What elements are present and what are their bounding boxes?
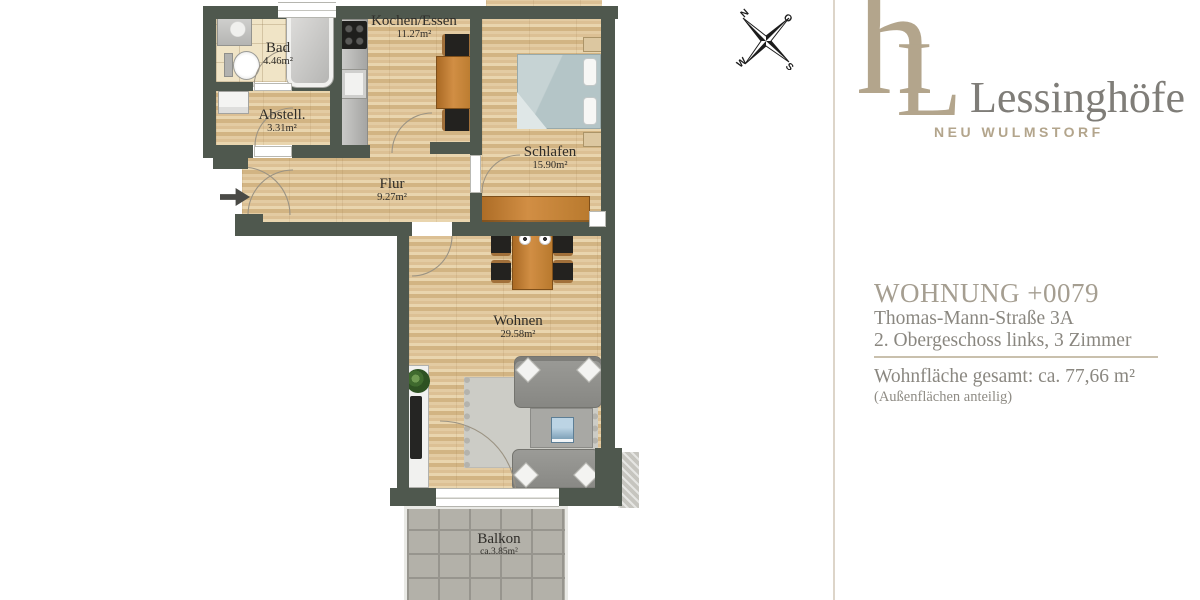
bath-window (278, 2, 336, 18)
tv (410, 396, 422, 459)
room-area: 4.46m² (263, 56, 293, 67)
unit-address: Thomas-Mann-Straße 3A (874, 308, 1074, 329)
wardrobe (477, 196, 590, 223)
room-label-abstell: Abstell. 3.31m² (258, 107, 305, 134)
pillow-bottom (583, 97, 597, 125)
room-label-kochen: Kochen/Essen 11.27m² (371, 13, 457, 40)
room-name: Schlafen (524, 144, 576, 160)
brand-monogram-l: L (896, 26, 962, 134)
kitchen-sink (341, 69, 367, 99)
dining-chair-1 (491, 233, 511, 256)
compass-label-west: W (735, 55, 750, 70)
room-area: 15.90m² (524, 160, 576, 171)
kitchen-table (436, 56, 474, 109)
wall-wohnen-bottom-left (390, 488, 440, 506)
shaft-window (589, 211, 606, 227)
compass-label-north: N (739, 8, 752, 20)
cooktop (341, 21, 367, 49)
wall-wohnen-bottom-right (556, 488, 601, 506)
schlafen-door-leaf (470, 155, 481, 193)
toilet-tank (224, 53, 233, 77)
wall-right (601, 6, 615, 455)
wall-entry-jamb-top (213, 155, 248, 169)
unit-area-note: (Außenflächen anteilig) (874, 390, 1012, 406)
pillow-top (583, 58, 597, 86)
room-name: Bad (263, 40, 293, 56)
bad-door-leaf (254, 83, 292, 91)
room-area: 11.27m² (371, 29, 457, 40)
room-area: 29.58m² (493, 329, 543, 340)
dining-chair-2 (491, 260, 511, 283)
storage-shelf (218, 91, 249, 114)
room-area: ca.3.85m² (477, 547, 520, 558)
wall-kitchen-schlafen (470, 6, 482, 155)
kitchen-chair-bottom (442, 109, 472, 131)
room-label-flur: Flur 9.27m² (377, 176, 407, 203)
plant (406, 369, 430, 393)
room-area: 3.31m² (258, 123, 305, 134)
dining-chair-4 (553, 260, 573, 283)
floor-plan-page: Bad 4.46m² Abstell. 3.31m² Kochen/Essen … (0, 0, 1200, 600)
compass-label-south: S (783, 61, 796, 70)
coffee-table-picture (551, 417, 574, 443)
room-name: Abstell. (258, 107, 305, 123)
brand-location: NEU WULMSTORF (934, 124, 1104, 140)
wall-abstell-bottom-right (292, 145, 370, 158)
room-label-wohnen: Wohnen 29.58m² (493, 313, 543, 340)
wall-bad-divider-left (203, 82, 253, 91)
unit-title: WOHNUNG +0079 (874, 280, 1099, 307)
compass-rose: N O W S (735, 8, 797, 70)
kitchen-window-crop (380, 0, 470, 6)
dining-chair-3 (553, 233, 573, 256)
panel-divider (833, 0, 835, 600)
room-name: Flur (377, 176, 407, 192)
abstell-door-leaf (254, 146, 292, 157)
room-label-balkon: Balkon ca.3.85m² (477, 531, 520, 558)
room-name: Wohnen (493, 313, 543, 329)
room-name: Balkon (477, 531, 520, 547)
balcony-door (436, 488, 559, 507)
wall-kitchen-bottom-stub (430, 142, 470, 154)
nightstand-top (583, 37, 602, 52)
room-area: 9.27m² (377, 192, 407, 203)
room-name: Kochen/Essen (371, 13, 457, 29)
bathtub (287, 8, 333, 87)
toilet-bowl (233, 51, 260, 80)
wall-schlafen-flur (470, 193, 482, 236)
room-label-schlafen: Schlafen 15.90m² (524, 144, 576, 171)
info-divider (874, 356, 1158, 358)
wall-flur-bottom (235, 222, 412, 236)
nightstand-bottom (583, 132, 602, 147)
flur-floor (242, 158, 342, 222)
wall-wohnen-left (397, 222, 409, 492)
unit-floor-info: 2. Obergeschoss links, 3 Zimmer (874, 330, 1131, 351)
brand-name: Lessinghöfe (970, 76, 1185, 120)
unit-area-total: Wohnfläche gesamt: ca. 77,66 m² (874, 366, 1135, 387)
room-label-bad: Bad 4.46m² (263, 40, 293, 67)
